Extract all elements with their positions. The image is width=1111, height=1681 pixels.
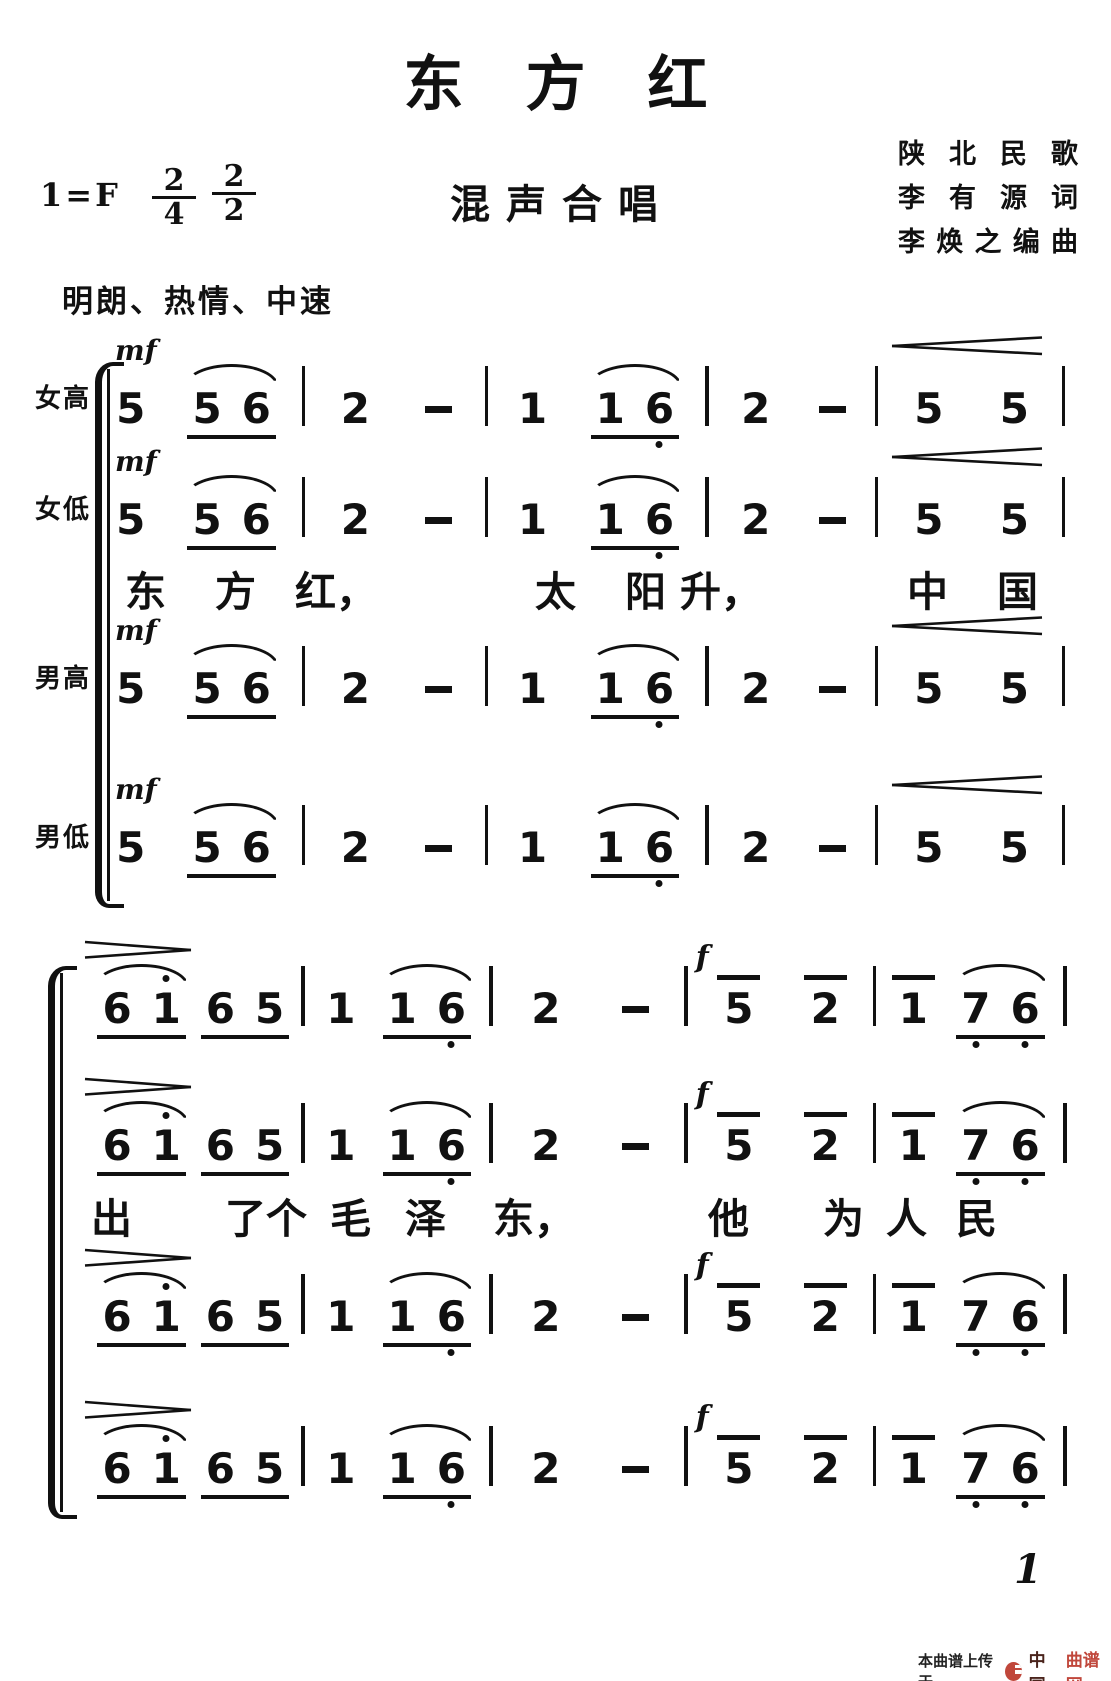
high-octave-dot xyxy=(163,1435,170,1442)
voice-label: 男低 xyxy=(35,817,89,854)
note-digit: 1 xyxy=(518,495,547,544)
note-with-overline: 2 xyxy=(811,988,840,1030)
note-digit: 1 xyxy=(326,984,355,1033)
note-digit: 1 xyxy=(152,1292,181,1341)
note: 1 xyxy=(518,388,547,430)
measure: f52 xyxy=(686,982,875,1034)
note: 5 xyxy=(116,827,145,869)
beamed-note-group: 76 xyxy=(956,1448,1044,1499)
lyric-syllable: 人 xyxy=(886,1185,927,1245)
low-octave-dot xyxy=(448,1501,455,1508)
measure: 2 xyxy=(491,1119,686,1171)
duration-dash xyxy=(425,686,452,693)
time-signature-denominator: 4 xyxy=(152,199,196,229)
site-logo-icon xyxy=(1005,1662,1022,1681)
beamed-note-group: 56 xyxy=(187,827,275,878)
note-digit: 1 xyxy=(388,1121,417,1170)
lyric-syllable: 东， xyxy=(493,1185,575,1245)
note-digit: 6 xyxy=(206,1121,235,1170)
measure: 55 xyxy=(876,662,1063,714)
tempo-marking: 明朗、热情、中速 xyxy=(62,276,334,321)
beamed-note-group: 16 xyxy=(591,827,679,878)
note: 6 xyxy=(645,668,674,710)
note-digit: 1 xyxy=(518,823,547,872)
measure: 6165 xyxy=(80,982,303,1034)
note-digit: 5 xyxy=(255,1292,284,1341)
lyric-syllable: 国 xyxy=(997,558,1038,618)
dynamic-mf: mf xyxy=(115,614,157,647)
note-digit: 5 xyxy=(724,1121,753,1170)
note-digit: 6 xyxy=(437,1444,466,1493)
note-digit: 5 xyxy=(914,664,943,713)
high-octave-dot xyxy=(163,1283,170,1290)
measures: mf5562116255 xyxy=(85,821,1063,873)
note-digit: 5 xyxy=(192,495,221,544)
note-digit: 2 xyxy=(341,823,370,872)
note-digit: 1 xyxy=(152,984,181,1033)
duration-dash xyxy=(622,1143,649,1150)
note-digit: 1 xyxy=(388,1292,417,1341)
measure: 2 xyxy=(491,1290,686,1342)
note-digit: 6 xyxy=(1011,984,1040,1033)
note-digit: 5 xyxy=(255,984,284,1033)
note: 1 xyxy=(326,1296,355,1338)
note: 1 xyxy=(388,1448,417,1490)
note: 6 xyxy=(645,827,674,869)
measures: 61651162f52176 xyxy=(80,1290,1065,1342)
note-digit: 6 xyxy=(242,823,271,872)
note-with-overline: 2 xyxy=(811,1296,840,1338)
low-octave-dot xyxy=(1022,1178,1029,1185)
note-digit: 2 xyxy=(741,823,770,872)
note: 6 xyxy=(437,1125,466,1167)
dynamic-f: f xyxy=(696,1400,709,1435)
note-digit: 5 xyxy=(116,664,145,713)
measure: 116 xyxy=(303,982,491,1034)
note: 1 xyxy=(518,499,547,541)
note: 6 xyxy=(645,388,674,430)
crescendo-hairpin xyxy=(890,773,1045,797)
high-octave-dot xyxy=(163,1112,170,1119)
note-digit: 2 xyxy=(341,384,370,433)
note: 1 xyxy=(388,1125,417,1167)
note: 5 xyxy=(116,499,145,541)
note: 1 xyxy=(518,827,547,869)
note-digit: 6 xyxy=(645,495,674,544)
voice-label: 女低 xyxy=(35,489,89,526)
lyric-syllable: 民 xyxy=(956,1185,997,1245)
duration-dash xyxy=(819,845,846,852)
voice-label: 女高 xyxy=(35,378,89,415)
measure: mf556 xyxy=(85,382,303,434)
credit-source: 陕北民歌 xyxy=(898,132,1078,176)
measure: 176 xyxy=(874,1290,1065,1342)
note-digit: 5 xyxy=(914,495,943,544)
note: 5 xyxy=(255,1125,284,1167)
decrescendo-hairpin xyxy=(83,1075,195,1099)
credit-lyricist: 李有源词 xyxy=(898,176,1078,220)
note: 1 xyxy=(152,1125,181,1167)
beamed-note-group: 65 xyxy=(201,1448,289,1499)
key-signature: 1=F xyxy=(40,176,121,214)
lyric-syllable: 了个 xyxy=(225,1185,307,1245)
duration-dash xyxy=(425,845,452,852)
measure: 116 xyxy=(486,662,707,714)
note-digit: 2 xyxy=(811,1292,840,1341)
duration-dash xyxy=(425,406,452,413)
note-digit: 6 xyxy=(102,1444,131,1493)
note-digit: 1 xyxy=(899,984,928,1033)
note: 5 xyxy=(914,668,943,710)
note: 6 xyxy=(437,1296,466,1338)
note: 6 xyxy=(242,668,271,710)
note: 1 xyxy=(518,668,547,710)
beamed-note-group: 16 xyxy=(383,1125,471,1176)
low-octave-dot xyxy=(448,1349,455,1356)
measure: 55 xyxy=(876,821,1063,873)
sheet-music-page: 东方红 1=F 2 4 2 2 混声合唱 陕北民歌 李有源词 李焕之编曲 明朗、… xyxy=(0,0,1111,1681)
site-name-dark: 中国 xyxy=(1029,1646,1059,1681)
note-digit: 5 xyxy=(724,984,753,1033)
lyric-syllable: 东 xyxy=(125,558,166,618)
lyric-syllable: 红， xyxy=(295,558,377,618)
note-digit: 1 xyxy=(596,823,625,872)
note-digit: 6 xyxy=(206,1292,235,1341)
note: 1 xyxy=(326,988,355,1030)
note-digit: 1 xyxy=(388,984,417,1033)
note-digit: 2 xyxy=(741,384,770,433)
measure: f52 xyxy=(686,1290,875,1342)
note-digit: 2 xyxy=(811,1444,840,1493)
beamed-note-group: 16 xyxy=(591,499,679,550)
note-with-overline: 2 xyxy=(811,1125,840,1167)
note: 1 xyxy=(596,827,625,869)
measure: 2 xyxy=(707,493,876,545)
note-digit: 6 xyxy=(437,1292,466,1341)
beamed-note-group: 16 xyxy=(383,1448,471,1499)
note-digit: 7 xyxy=(961,1292,990,1341)
note-with-overline: 5 xyxy=(724,1448,753,1490)
note-digit: 5 xyxy=(192,823,221,872)
note-digit: 2 xyxy=(811,984,840,1033)
note-with-overline: 5 xyxy=(724,1296,753,1338)
note-digit: 2 xyxy=(531,1121,560,1170)
voice-line-2: 61651162f52176 xyxy=(80,1119,1065,1171)
voice-line-3: 61651162f52176 xyxy=(80,1290,1065,1342)
note: 2 xyxy=(531,1125,560,1167)
note-digit: 6 xyxy=(437,1121,466,1170)
time-signature-2-4: 2 4 xyxy=(152,166,196,229)
note: 2 xyxy=(531,988,560,1030)
note: 1 xyxy=(388,1296,417,1338)
upload-note-text: 本曲谱上传于 xyxy=(918,1650,998,1681)
note: 6 xyxy=(1011,988,1040,1030)
note: 1 xyxy=(152,988,181,1030)
note-digit: 1 xyxy=(152,1121,181,1170)
note-digit: 6 xyxy=(242,664,271,713)
low-octave-dot xyxy=(656,880,663,887)
note-digit: 7 xyxy=(961,984,990,1033)
lyric-syllable: 为 xyxy=(823,1185,864,1245)
decrescendo-hairpin xyxy=(83,1246,195,1270)
low-octave-dot xyxy=(448,1041,455,1048)
beamed-note-group: 16 xyxy=(591,388,679,439)
note-digit: 6 xyxy=(206,984,235,1033)
beamed-note-group: 76 xyxy=(956,1296,1044,1347)
lyric-syllable: 泽 xyxy=(405,1185,446,1245)
dynamic-f: f xyxy=(696,940,709,975)
ensemble-type: 混声合唱 xyxy=(450,172,674,230)
note: 6 xyxy=(102,1296,131,1338)
note-digit: 5 xyxy=(1000,664,1029,713)
note-digit: 1 xyxy=(326,1292,355,1341)
lyric-syllable: 升， xyxy=(680,558,762,618)
note: 5 xyxy=(914,499,943,541)
note-digit: 6 xyxy=(1011,1121,1040,1170)
note-digit: 5 xyxy=(724,1292,753,1341)
measure: 2 xyxy=(707,662,876,714)
note-digit: 6 xyxy=(645,384,674,433)
note: 6 xyxy=(1011,1448,1040,1490)
measure: f52 xyxy=(686,1442,875,1494)
low-octave-dot xyxy=(656,441,663,448)
note-digit: 2 xyxy=(531,984,560,1033)
note-digit: 2 xyxy=(341,495,370,544)
note-digit: 2 xyxy=(531,1444,560,1493)
note-digit: 2 xyxy=(341,664,370,713)
note-digit: 7 xyxy=(961,1444,990,1493)
note: 2 xyxy=(341,499,370,541)
score-system-2: 61651162f5217661651162f52176出了个毛泽东，他为人民6… xyxy=(80,982,1065,1562)
note-with-overline: 5 xyxy=(724,1125,753,1167)
measure: mf556 xyxy=(85,821,303,873)
note-digit: 6 xyxy=(242,495,271,544)
note: 5 xyxy=(914,827,943,869)
measure: 176 xyxy=(874,1442,1065,1494)
beamed-note-group: 61 xyxy=(97,1125,185,1176)
measure: 2 xyxy=(303,662,486,714)
note-digit: 2 xyxy=(811,1121,840,1170)
beamed-note-group: 56 xyxy=(187,388,275,439)
measure: f52 xyxy=(686,1119,875,1171)
dynamic-mf: mf xyxy=(115,334,157,367)
note: 5 xyxy=(192,388,221,430)
note-digit: 6 xyxy=(102,984,131,1033)
note-digit: 1 xyxy=(596,495,625,544)
beamed-note-group: 61 xyxy=(97,1448,185,1499)
measure: 116 xyxy=(486,493,707,545)
note-digit: 2 xyxy=(531,1292,560,1341)
measure: 55 xyxy=(876,382,1063,434)
note: 1 xyxy=(152,1296,181,1338)
measure: 2 xyxy=(707,821,876,873)
beamed-note-group: 16 xyxy=(591,668,679,719)
note: 2 xyxy=(741,388,770,430)
low-octave-dot xyxy=(972,1349,979,1356)
note: 6 xyxy=(206,1296,235,1338)
voice-line-1: 女高mf5562116255 xyxy=(85,382,1063,434)
beamed-note-group: 16 xyxy=(383,988,471,1039)
note: 6 xyxy=(102,988,131,1030)
time-signature-2-2: 2 2 xyxy=(212,162,256,225)
voice-label: 男高 xyxy=(35,658,89,695)
note: 6 xyxy=(242,827,271,869)
note-digit: 2 xyxy=(741,664,770,713)
note-digit: 1 xyxy=(899,1292,928,1341)
measure: 116 xyxy=(303,1442,491,1494)
score-system-1: 女高mf5562116255女低mf5562116255东方红，太阳升，中国男高… xyxy=(85,382,1063,942)
credits-block: 陕北民歌 李有源词 李焕之编曲 xyxy=(898,132,1078,264)
note: 5 xyxy=(116,668,145,710)
note: 2 xyxy=(741,668,770,710)
note-digit: 1 xyxy=(326,1121,355,1170)
note-digit: 1 xyxy=(388,1444,417,1493)
lyric-syllable: 中 xyxy=(907,558,948,618)
note: 7 xyxy=(961,1448,990,1490)
note-digit: 5 xyxy=(1000,495,1029,544)
beamed-note-group: 76 xyxy=(956,1125,1044,1176)
lyric-syllable: 阳 xyxy=(625,558,666,618)
note: 2 xyxy=(341,388,370,430)
note-digit: 6 xyxy=(102,1121,131,1170)
note: 5 xyxy=(255,1296,284,1338)
time-signature-numerator: 2 xyxy=(212,162,256,195)
note: 1 xyxy=(326,1125,355,1167)
beamed-note-group: 65 xyxy=(201,988,289,1039)
note: 5 xyxy=(914,388,943,430)
note: 5 xyxy=(192,499,221,541)
measure: 2 xyxy=(491,1442,686,1494)
note-with-overline: 5 xyxy=(724,988,753,1030)
beamed-note-group: 76 xyxy=(956,988,1044,1039)
measures: 61651162f52176 xyxy=(80,982,1065,1034)
note-digit: 5 xyxy=(724,1444,753,1493)
note: 6 xyxy=(645,499,674,541)
beamed-note-group: 61 xyxy=(97,1296,185,1347)
measure: 2 xyxy=(491,982,686,1034)
voice-line-3: 男高mf5562116255 xyxy=(85,662,1063,714)
note-digit: 1 xyxy=(326,1444,355,1493)
note-digit: 5 xyxy=(192,384,221,433)
note: 6 xyxy=(206,1125,235,1167)
measure: mf556 xyxy=(85,662,303,714)
site-watermark: 本曲谱上传于 中国 曲谱网 xyxy=(918,1646,1111,1681)
low-octave-dot xyxy=(972,1178,979,1185)
beamed-note-group: 16 xyxy=(383,1296,471,1347)
lyrics-row: 东方红，太阳升，中国 xyxy=(85,558,1063,608)
system-brace xyxy=(48,966,77,1519)
note: 7 xyxy=(961,1296,990,1338)
decrescendo-hairpin xyxy=(83,1398,195,1422)
note-digit: 1 xyxy=(518,384,547,433)
beamed-note-group: 61 xyxy=(97,988,185,1039)
note: 6 xyxy=(1011,1125,1040,1167)
note-digit: 5 xyxy=(255,1444,284,1493)
duration-dash xyxy=(819,517,846,524)
note: 2 xyxy=(741,827,770,869)
measure: 6165 xyxy=(80,1290,303,1342)
note: 6 xyxy=(1011,1296,1040,1338)
note-digit: 7 xyxy=(961,1121,990,1170)
note-digit: 1 xyxy=(596,384,625,433)
credit-arranger: 李焕之编曲 xyxy=(898,220,1078,264)
note: 7 xyxy=(961,988,990,1030)
note-digit: 5 xyxy=(116,384,145,433)
note: 2 xyxy=(531,1296,560,1338)
dynamic-mf: mf xyxy=(115,773,157,806)
note: 6 xyxy=(102,1125,131,1167)
lyrics-row: 出了个毛泽东，他为人民 xyxy=(80,1185,1065,1235)
voice-line-4: 61651162f52176 xyxy=(80,1442,1065,1494)
note: 5 xyxy=(192,668,221,710)
crescendo-hairpin xyxy=(890,334,1045,358)
duration-dash xyxy=(819,406,846,413)
note: 2 xyxy=(531,1448,560,1490)
note-digit: 5 xyxy=(1000,823,1029,872)
low-octave-dot xyxy=(972,1041,979,1048)
note: 5 xyxy=(1000,668,1029,710)
dynamic-f: f xyxy=(696,1248,709,1283)
page-number: 1 xyxy=(1014,1546,1042,1593)
duration-dash xyxy=(425,517,452,524)
note: 2 xyxy=(341,827,370,869)
time-signature-denominator: 2 xyxy=(212,195,256,225)
note: 6 xyxy=(102,1448,131,1490)
low-octave-dot xyxy=(1022,1041,1029,1048)
measure: mf556 xyxy=(85,493,303,545)
measure: 6165 xyxy=(80,1442,303,1494)
note-with-overline: 1 xyxy=(899,1448,928,1490)
note-digit: 6 xyxy=(102,1292,131,1341)
low-octave-dot xyxy=(448,1178,455,1185)
measures: 61651162f52176 xyxy=(80,1442,1065,1494)
note: 6 xyxy=(206,1448,235,1490)
dynamic-mf: mf xyxy=(115,445,157,478)
note-digit: 1 xyxy=(899,1444,928,1493)
time-signature-numerator: 2 xyxy=(152,166,196,199)
crescendo-hairpin xyxy=(890,614,1045,638)
measure: 6165 xyxy=(80,1119,303,1171)
note: 1 xyxy=(596,668,625,710)
measures: mf5562116255 xyxy=(85,382,1063,434)
note-digit: 5 xyxy=(255,1121,284,1170)
note-with-overline: 1 xyxy=(899,1296,928,1338)
note-digit: 5 xyxy=(192,664,221,713)
voice-line-4: 男低mf5562116255 xyxy=(85,821,1063,873)
dynamic-f: f xyxy=(696,1077,709,1112)
voice-line-2: 女低mf5562116255 xyxy=(85,493,1063,545)
note: 6 xyxy=(437,1448,466,1490)
note-digit: 1 xyxy=(152,1444,181,1493)
note-digit: 1 xyxy=(596,664,625,713)
low-octave-dot xyxy=(1022,1501,1029,1508)
high-octave-dot xyxy=(163,975,170,982)
note: 6 xyxy=(242,499,271,541)
voice-line-1: 61651162f52176 xyxy=(80,982,1065,1034)
note-digit: 2 xyxy=(741,495,770,544)
note: 5 xyxy=(192,827,221,869)
note: 5 xyxy=(255,988,284,1030)
measure: 116 xyxy=(303,1290,491,1342)
note-digit: 6 xyxy=(645,664,674,713)
low-octave-dot xyxy=(972,1501,979,1508)
measure: 2 xyxy=(707,382,876,434)
note: 7 xyxy=(961,1125,990,1167)
note-with-overline: 1 xyxy=(899,988,928,1030)
lyric-syllable: 太 xyxy=(535,558,576,618)
crescendo-hairpin xyxy=(890,445,1045,469)
beamed-note-group: 65 xyxy=(201,1125,289,1176)
